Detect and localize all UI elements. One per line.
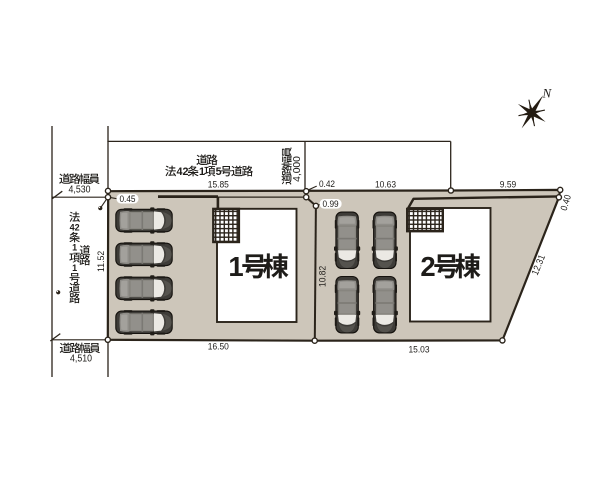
svg-text:1: 1: [72, 243, 77, 253]
svg-text:0.45: 0.45: [119, 193, 135, 204]
svg-text:10.63: 10.63: [375, 180, 396, 191]
svg-text:15.85: 15.85: [208, 179, 229, 190]
svg-text:2: 2: [420, 251, 435, 282]
svg-text:4,510: 4,510: [70, 353, 92, 364]
svg-text:1: 1: [72, 263, 77, 273]
svg-text:0.42: 0.42: [319, 178, 335, 189]
svg-text:1: 1: [228, 251, 243, 282]
svg-text:0.99: 0.99: [323, 198, 339, 209]
svg-text:1: 1: [199, 166, 205, 178]
svg-text:9.59: 9.59: [500, 180, 516, 191]
svg-text:42: 42: [70, 222, 80, 232]
svg-text:15.03: 15.03: [408, 344, 429, 355]
svg-text:4,530: 4,530: [69, 184, 91, 195]
svg-text:4,000: 4,000: [292, 156, 303, 182]
svg-text:10.82: 10.82: [317, 266, 328, 287]
svg-text:5: 5: [216, 166, 222, 178]
svg-text:11.52: 11.52: [96, 251, 107, 272]
svg-text:N: N: [541, 86, 552, 101]
svg-text:16.50: 16.50: [208, 342, 229, 353]
svg-text:42: 42: [177, 166, 189, 178]
